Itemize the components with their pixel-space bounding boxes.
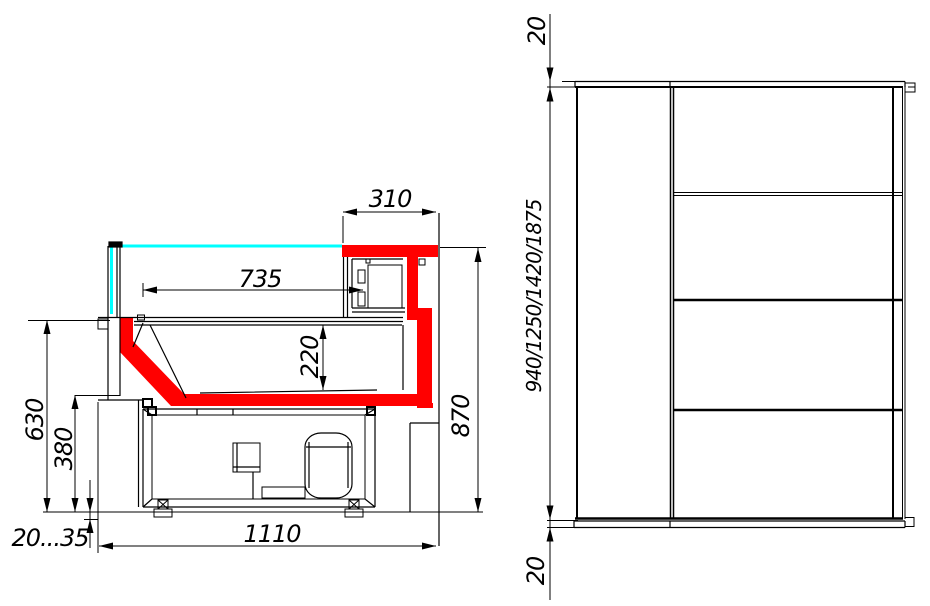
foot-base (154, 509, 172, 517)
technical-drawing-canvas: 310 735 220 630 380 870 1110 20...35 (0, 0, 930, 606)
foot-base (345, 509, 363, 517)
rear-bracket-lower (358, 292, 365, 306)
arrow (547, 528, 554, 542)
dim-label-310: 310 (369, 185, 413, 213)
glass-panels (112, 246, 343, 314)
right-step (410, 423, 439, 512)
dim-label-630: 630 (21, 398, 49, 442)
front-elevation-view: 20 940/1250/1420/1875 20 (522, 14, 915, 600)
red-bottom-tab (417, 403, 433, 408)
case-right-outer-edge (903, 87, 906, 519)
dimensions-front: 20 940/1250/1420/1875 20 (522, 14, 578, 600)
foot-bolt-cross (349, 500, 359, 509)
arrow (547, 68, 554, 82)
arrow (143, 287, 157, 294)
top-right-notch (905, 83, 915, 92)
leveling-foot-right (345, 500, 363, 517)
rear-wall-lines (344, 257, 348, 318)
arrow (422, 209, 436, 216)
arrow (44, 498, 51, 512)
dim-label-870: 870 (447, 394, 475, 438)
arrow (72, 395, 79, 409)
arrow (87, 498, 94, 512)
dim-label-735: 735 (239, 265, 282, 293)
arrow (475, 498, 482, 512)
red-basin-bottom (171, 394, 432, 406)
dim-label-bottom-20: 20 (522, 556, 550, 585)
dim-labels-side: 310 735 220 630 380 870 1110 20...35 (12, 185, 475, 552)
compressor-body (305, 433, 352, 498)
machine-compartment-outer (143, 409, 375, 507)
glass-clamp (109, 242, 122, 247)
rear-bracket-upper (358, 270, 365, 283)
red-front-profile (120, 318, 184, 406)
arrow (343, 209, 357, 216)
condenser-details (233, 443, 260, 499)
rear-compartment (352, 259, 405, 312)
dim-label-380: 380 (50, 427, 78, 471)
red-rear-column (417, 308, 432, 406)
dim-label-heights: 940/1250/1420/1875 (522, 199, 546, 392)
arrow (99, 543, 113, 550)
counter-deck (98, 318, 403, 326)
panel-seam (671, 87, 674, 519)
compressor-details (306, 442, 351, 488)
dim-label-220: 220 (296, 335, 324, 379)
dimensions-side: 310 735 220 630 380 870 1110 20...35 (12, 185, 486, 553)
drain-tray (262, 487, 305, 498)
rear-compartment-inner (368, 265, 402, 308)
fastener-mark-right (419, 259, 425, 265)
drawing-sheet: 310 735 220 630 380 870 1110 20...35 (0, 0, 930, 606)
machine-compartment-inner (152, 415, 365, 499)
arrow (422, 543, 436, 550)
arrow (475, 248, 482, 262)
arrow (44, 320, 51, 334)
side-section-view: 310 735 220 630 380 870 1110 20...35 (12, 185, 486, 553)
red-top-shelf (342, 245, 438, 257)
basin-front-block (143, 399, 152, 407)
arrow (547, 506, 554, 520)
dim-ext-lines (547, 82, 578, 528)
shelf-divider-1 (673, 193, 903, 196)
compartment-corner-joins (143, 409, 375, 507)
arrow (72, 498, 79, 512)
dim-line-310 (343, 212, 436, 243)
dim-label-foot-range: 20...35 (12, 524, 89, 552)
bottom-band (574, 521, 905, 528)
dim-label-top-20: 20 (523, 16, 551, 45)
elevation-linework (574, 82, 915, 528)
leveling-foot-left (154, 500, 172, 517)
bottom-right-notch (905, 518, 914, 527)
glass-frame (108, 246, 120, 318)
dim-label-1110: 1110 (243, 520, 301, 548)
arrow (547, 88, 554, 102)
foot-bolt-cross (158, 500, 168, 509)
dim-line-870 (440, 248, 486, 513)
red-shelf-stem (407, 257, 418, 320)
